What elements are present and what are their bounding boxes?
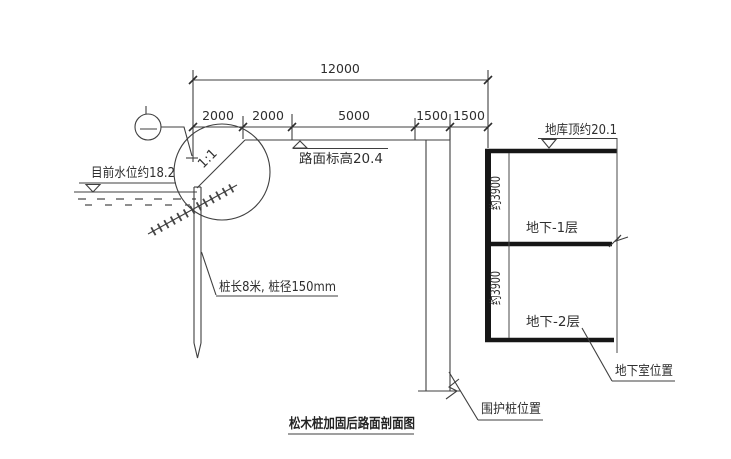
pile-note-label: 桩长8米, 桩径150mm bbox=[219, 280, 336, 295]
basement-position-leader bbox=[582, 328, 612, 381]
garage-top-label: 地库顶约20.1 bbox=[545, 122, 617, 138]
basement-position-label: 地下室位置 bbox=[615, 363, 673, 379]
pine-pile: 桩长8米, 桩径150mm bbox=[194, 187, 338, 358]
drawing-title: 松木桩加固后路面剖面图 bbox=[288, 415, 415, 434]
pile-note-leader bbox=[202, 252, 217, 295]
dim-segment-value: 1500 bbox=[453, 108, 485, 123]
water-level: 目前水位约18.2 bbox=[74, 165, 197, 205]
pile-tip bbox=[194, 343, 201, 358]
garage-top-marker-icon bbox=[542, 140, 556, 149]
floor-minus1-label: 地下-1层 bbox=[526, 221, 578, 236]
floor2-height-label: 约3900 bbox=[489, 271, 504, 305]
dim-segment-value: 5000 bbox=[338, 108, 370, 123]
title-text: 松木桩加固后路面剖面图 bbox=[289, 415, 415, 432]
detail-callout-bubble-icon bbox=[135, 114, 161, 140]
water-level-marker-icon bbox=[86, 185, 100, 193]
dim-segment-value: 1500 bbox=[416, 108, 448, 123]
floor1-height-label: 约3900 bbox=[489, 176, 504, 210]
basement: 地库顶约20.1 约3900 约3900 地下-1层 地下-2层 地下室位置 bbox=[485, 122, 675, 381]
road-elevation-label: 路面标高20.4 bbox=[299, 151, 383, 167]
road-surface: 路面标高20.4 bbox=[245, 140, 450, 167]
retaining-pile-leader bbox=[449, 372, 478, 420]
road-elevation-marker-icon bbox=[293, 141, 307, 148]
dimension-chain: 12000 2000 2000 5000 1500 1500 bbox=[189, 61, 492, 162]
slope-detail: 1:1 bbox=[135, 106, 270, 220]
section-drawing: 12000 2000 2000 5000 1500 1500 路面标高20.4 … bbox=[0, 0, 731, 459]
break-symbol bbox=[446, 379, 459, 399]
retaining-pile-label: 围护桩位置 bbox=[481, 402, 541, 417]
callout-leader bbox=[161, 127, 192, 156]
dim-total-value: 12000 bbox=[320, 61, 360, 76]
dim-segment-value: 2000 bbox=[202, 108, 234, 123]
drawing-canvas: 12000 2000 2000 5000 1500 1500 路面标高20.4 … bbox=[0, 0, 731, 459]
retaining-pile: 围护桩位置 bbox=[418, 127, 543, 420]
dim-segment-value: 2000 bbox=[252, 108, 284, 123]
water-level-label: 目前水位约18.2 bbox=[91, 165, 175, 181]
floor-minus2-label: 地下-2层 bbox=[526, 315, 580, 330]
detail-circle bbox=[174, 124, 270, 220]
